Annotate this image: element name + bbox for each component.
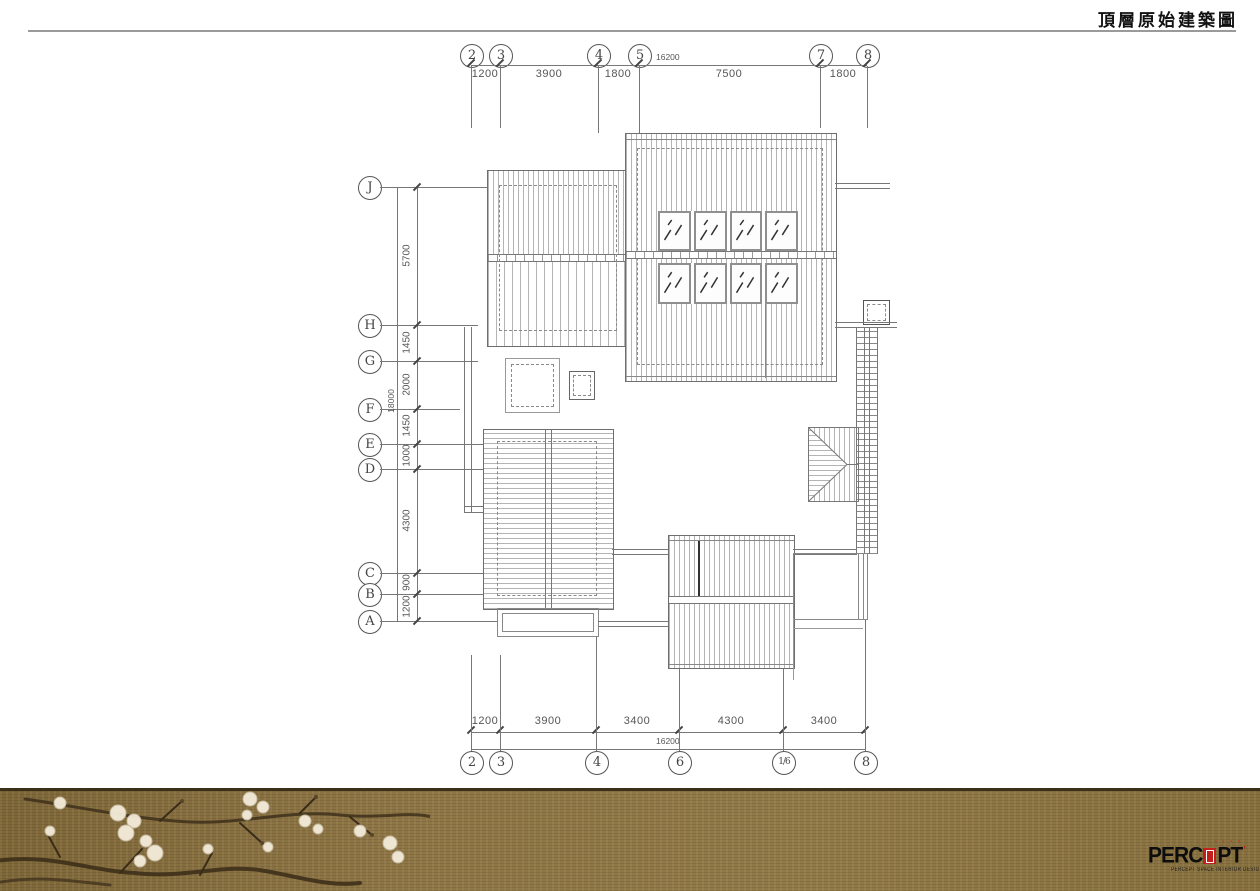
roof-ridge <box>669 596 794 604</box>
grid-extension-line <box>820 66 821 128</box>
skylight-row <box>658 211 798 251</box>
roof-upper-left <box>487 170 627 347</box>
title-divider <box>28 30 1236 32</box>
eave-line <box>835 183 890 189</box>
grid-bubble: D <box>358 458 382 482</box>
terrace-rail <box>858 554 864 619</box>
grid-extension-line <box>783 668 784 751</box>
skylight-panel <box>730 263 763 304</box>
balcony <box>497 608 599 637</box>
terrace-step-line <box>793 628 863 629</box>
roof-edge-line <box>626 376 836 377</box>
roof-ridge <box>626 251 836 259</box>
eave-line <box>612 549 668 555</box>
wall-outline <box>464 327 472 512</box>
dimension-label: 1800 <box>813 68 873 80</box>
skylight-panel <box>765 263 798 304</box>
stair-ladder <box>856 327 878 554</box>
wall-line <box>793 618 794 680</box>
ladder-rail <box>864 327 865 554</box>
grid-extension-line <box>500 655 501 751</box>
roof-overhang-dashed <box>499 185 617 331</box>
dimension-line <box>397 187 398 621</box>
skylight-panel <box>765 211 798 251</box>
grid-extension-line <box>867 66 868 128</box>
logo-text-post: PT <box>1217 846 1242 867</box>
chimney-dashed <box>573 375 591 396</box>
grid-bubble: 8 <box>854 751 878 775</box>
grid-extension-line <box>865 620 866 751</box>
dimension-label: 5700 <box>402 226 413 286</box>
total-dimension: 16200 <box>656 736 680 746</box>
grid-bubble: F <box>358 398 382 422</box>
chimney <box>569 371 595 400</box>
dimension-label: 3400 <box>607 715 667 727</box>
roof-edge-line <box>669 540 794 541</box>
dimension-label: 1000 <box>402 426 413 486</box>
roof-opening <box>505 358 560 413</box>
dimension-label: 1200 <box>455 715 515 727</box>
chimney-dashed <box>867 304 886 321</box>
dimension-label: 3400 <box>794 715 854 727</box>
eave-line <box>793 549 857 555</box>
grid-leader <box>380 325 478 326</box>
grid-bubble: 4 <box>585 751 609 775</box>
roof-hip-line <box>698 541 700 596</box>
grid-bubble: 6 <box>668 751 692 775</box>
skylight-panel <box>694 211 727 251</box>
dimension-label: 3900 <box>518 715 578 727</box>
logo-caption: PERCEPT SPACE INTERIOR DESIGN LTD <box>1171 867 1246 873</box>
dimension-label: 7500 <box>699 68 759 80</box>
dimension-label: 4300 <box>402 491 413 551</box>
grid-bubble: G <box>358 350 382 374</box>
hip-roof-lines <box>809 428 858 501</box>
total-dimension: 16200 <box>656 52 680 62</box>
dimension-label: 1200 <box>402 577 413 637</box>
footer-band: ▪ ▪ ▪ ▪ PERC PT ’ PERCEPT SPACE INTERIOR… <box>0 788 1260 891</box>
grid-extension-line <box>639 66 640 133</box>
page-title: 頂層原始建築圖 <box>1098 6 1238 31</box>
grid-extension-line <box>679 668 680 751</box>
grid-extension-line <box>596 637 597 751</box>
logo-wordmark: PERC PT ’ <box>1142 846 1246 866</box>
grid-leader <box>380 594 483 595</box>
grid-bubble-fraction: 1/6 <box>772 751 796 775</box>
grid-extension-line <box>598 66 599 133</box>
skylight-panel <box>658 211 691 251</box>
logo-door-icon <box>1203 848 1216 864</box>
logo-text-pre: PERC <box>1148 846 1202 867</box>
grid-extension-line <box>471 66 472 128</box>
roof-bottom-middle <box>668 535 795 669</box>
roof-overhang-dashed <box>497 441 597 596</box>
grid-bubble: 2 <box>460 751 484 775</box>
grid-leader <box>380 621 497 622</box>
dimension-line <box>471 749 865 750</box>
roof-main <box>625 133 837 382</box>
roof-lower-left <box>483 429 614 610</box>
terrace-right <box>793 553 868 620</box>
grid-extension-line <box>500 66 501 128</box>
ladder-rail <box>869 327 870 554</box>
grid-bubble: B <box>358 583 382 607</box>
roof-valley-line <box>765 304 766 378</box>
dimension-label: 1200 <box>455 68 515 80</box>
grid-leader <box>380 573 483 574</box>
grid-extension-line <box>471 655 472 751</box>
roof-edge-line <box>669 664 794 665</box>
grid-bubble: J <box>358 176 382 200</box>
roof-edge-line <box>626 139 836 140</box>
balcony-inner <box>502 613 594 632</box>
roof-opening-dashed <box>511 364 554 407</box>
hip-roof-bay <box>808 427 859 502</box>
wall-outline <box>464 506 483 513</box>
skylight-panel <box>730 211 763 251</box>
plum-blossom-painting <box>0 791 430 891</box>
logo-tick-mark: ’ <box>1243 845 1246 856</box>
grid-bubble: 3 <box>489 751 513 775</box>
dimension-line <box>417 187 418 621</box>
dimension-line <box>471 65 867 66</box>
grid-bubble: H <box>358 314 382 338</box>
skylight-panel <box>658 263 691 304</box>
percept-logo: ▪ ▪ ▪ ▪ PERC PT ’ PERCEPT SPACE INTERIOR… <box>1142 839 1246 873</box>
skylight-row <box>658 263 798 304</box>
skylight-panel <box>694 263 727 304</box>
grid-bubble: A <box>358 610 382 634</box>
grid-bubble: E <box>358 433 382 457</box>
eave-line <box>598 621 668 627</box>
dimension-label: 4300 <box>701 715 761 727</box>
drawing-sheet: 頂層原始建築圖 2 3 4 5 7 8 16200 1200 3900 1800… <box>0 0 1260 891</box>
total-dimension: 18000 <box>386 371 396 431</box>
dimension-label: 3900 <box>519 68 579 80</box>
dimension-line <box>471 732 865 733</box>
